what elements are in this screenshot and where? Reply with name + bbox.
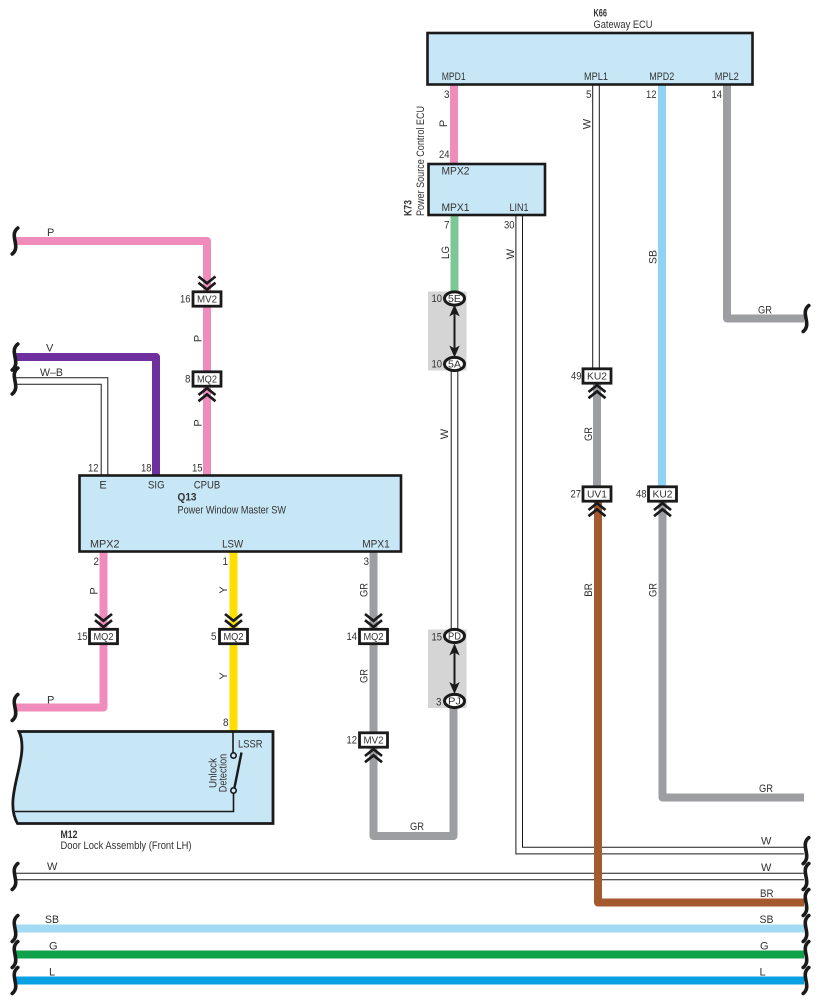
svg-text:MPX1: MPX1 (442, 202, 470, 214)
svg-text:15: 15 (77, 631, 88, 643)
svg-text:GR: GR (410, 821, 424, 833)
svg-text:BR: BR (583, 583, 595, 597)
svg-text:PD: PD (448, 631, 461, 643)
svg-text:MQ2: MQ2 (364, 632, 384, 643)
svg-text:W: W (761, 862, 772, 874)
svg-text:P: P (47, 695, 54, 707)
svg-text:3: 3 (364, 556, 370, 568)
svg-text:P: P (193, 419, 205, 426)
svg-text:5A: 5A (448, 359, 461, 371)
svg-text:GR: GR (583, 427, 595, 441)
svg-text:10: 10 (432, 358, 443, 370)
svg-text:GR: GR (359, 669, 371, 683)
svg-text:L: L (760, 967, 766, 979)
svg-text:12: 12 (347, 735, 358, 747)
svg-text:MPX2: MPX2 (90, 539, 120, 551)
svg-text:14: 14 (347, 631, 358, 643)
svg-text:V: V (46, 343, 54, 355)
svg-text:LSW: LSW (222, 539, 244, 551)
svg-text:K66: K66 (594, 8, 608, 20)
svg-text:W: W (761, 836, 772, 848)
svg-text:3: 3 (444, 89, 450, 101)
svg-text:27: 27 (571, 489, 582, 501)
svg-text:SB: SB (45, 914, 59, 926)
svg-text:G: G (760, 941, 769, 953)
svg-text:3: 3 (436, 697, 442, 709)
svg-text:8: 8 (223, 717, 229, 729)
svg-text:KU2: KU2 (653, 490, 673, 501)
svg-text:LSSR: LSSR (238, 739, 263, 751)
svg-text:GR: GR (359, 583, 371, 597)
svg-text:12: 12 (88, 462, 99, 474)
svg-text:1: 1 (223, 556, 229, 568)
svg-text:L: L (49, 967, 55, 979)
svg-text:LIN1: LIN1 (510, 202, 529, 214)
svg-text:MQ2: MQ2 (197, 375, 217, 386)
svg-text:Detection: Detection (218, 754, 230, 793)
svg-text:UV1: UV1 (587, 490, 607, 501)
svg-text:CPUB: CPUB (194, 480, 221, 492)
svg-text:Power Source Control ECU: Power Source Control ECU (415, 106, 427, 216)
svg-text:Gateway ECU: Gateway ECU (594, 19, 653, 31)
svg-text:G: G (49, 941, 58, 953)
svg-text:BR: BR (760, 888, 774, 900)
svg-text:MQ2: MQ2 (94, 632, 114, 643)
svg-text:Door Lock Assembly (Front LH): Door Lock Assembly (Front LH) (61, 840, 192, 852)
svg-text:16: 16 (180, 294, 191, 306)
svg-text:MPX2: MPX2 (442, 166, 470, 178)
svg-text:15: 15 (192, 462, 203, 474)
svg-text:P: P (89, 587, 101, 594)
svg-text:Power Window Master SW: Power Window Master SW (178, 505, 287, 517)
svg-text:14: 14 (712, 89, 723, 101)
svg-text:MPL1: MPL1 (584, 71, 608, 83)
svg-text:GR: GR (648, 583, 660, 597)
svg-text:K73: K73 (403, 200, 415, 216)
svg-text:P: P (47, 227, 54, 239)
svg-text:30: 30 (504, 219, 515, 231)
svg-text:7: 7 (444, 219, 450, 231)
svg-text:W: W (505, 248, 517, 259)
svg-text:5: 5 (586, 89, 592, 101)
svg-text:SIG: SIG (148, 480, 165, 492)
svg-text:GR: GR (758, 305, 772, 317)
svg-text:PJ: PJ (448, 696, 461, 708)
svg-text:W: W (47, 861, 58, 873)
svg-text:P: P (193, 335, 205, 342)
svg-text:MPX1: MPX1 (362, 539, 390, 551)
svg-text:MV2: MV2 (364, 736, 384, 747)
svg-text:MPD1: MPD1 (442, 71, 466, 83)
svg-text:Y: Y (218, 586, 230, 594)
svg-text:W: W (439, 428, 451, 439)
svg-text:LG: LG (440, 246, 452, 259)
svg-text:W–B: W–B (40, 367, 63, 379)
svg-text:P: P (438, 120, 450, 127)
svg-text:MPL2: MPL2 (715, 71, 739, 83)
svg-text:5: 5 (211, 631, 217, 643)
svg-text:MV2: MV2 (197, 295, 217, 306)
svg-text:8: 8 (185, 374, 191, 386)
svg-text:W: W (582, 118, 594, 129)
svg-text:12: 12 (646, 89, 657, 101)
svg-text:GR: GR (759, 783, 773, 795)
svg-text:MQ2: MQ2 (224, 632, 244, 643)
svg-text:18: 18 (141, 462, 152, 474)
svg-text:Y: Y (218, 672, 230, 680)
svg-text:10: 10 (432, 293, 443, 305)
svg-text:E: E (99, 480, 106, 492)
svg-text:Q13: Q13 (178, 492, 197, 504)
svg-text:SB: SB (648, 250, 660, 264)
svg-text:5E: 5E (448, 293, 461, 305)
svg-text:15: 15 (432, 632, 443, 644)
svg-text:MPD2: MPD2 (649, 71, 674, 83)
svg-text:SB: SB (760, 914, 774, 926)
svg-text:KU2: KU2 (587, 372, 607, 383)
svg-text:2: 2 (94, 556, 100, 568)
svg-text:48: 48 (636, 489, 647, 501)
svg-text:49: 49 (571, 371, 582, 383)
svg-text:24: 24 (439, 149, 450, 161)
